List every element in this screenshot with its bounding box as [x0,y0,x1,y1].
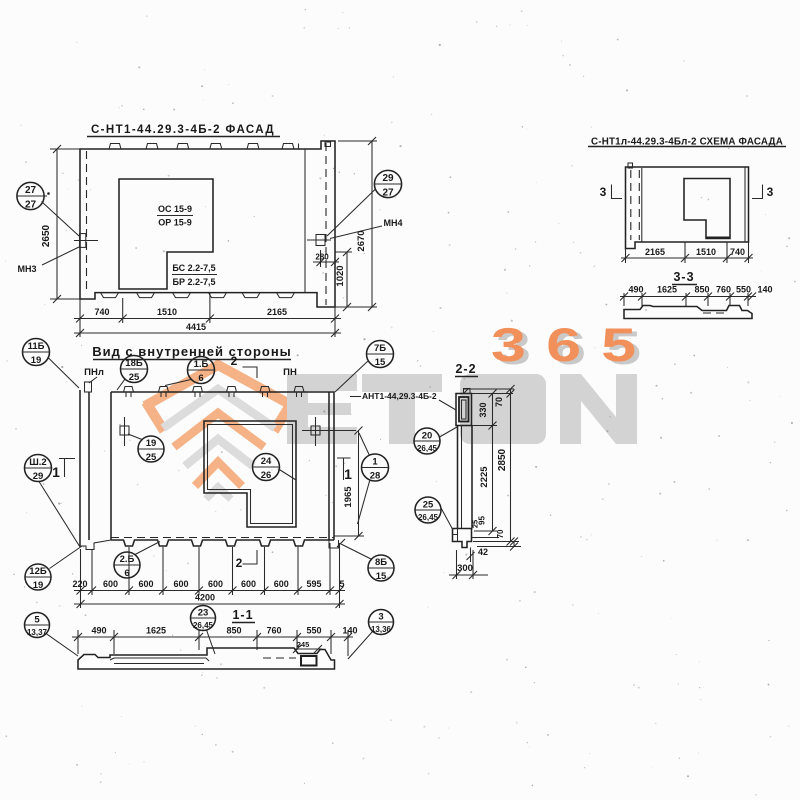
svg-text:19: 19 [31,355,42,366]
svg-text:1: 1 [52,464,60,480]
svg-text:5: 5 [339,579,344,589]
svg-text:5: 5 [34,615,40,626]
svg-text:600: 600 [173,579,188,589]
svg-text:300: 300 [457,563,473,574]
svg-text:ПНл: ПНл [84,367,104,378]
svg-text:2850: 2850 [497,448,508,471]
svg-text:25: 25 [423,500,434,511]
svg-text:3-3: 3-3 [673,270,694,284]
svg-text:8Б: 8Б [375,557,387,568]
svg-text:490: 490 [91,626,106,636]
svg-text:600: 600 [103,579,118,589]
svg-text:13,36: 13,36 [371,625,392,634]
svg-text:1510: 1510 [157,307,177,317]
svg-text:95: 95 [478,516,487,525]
svg-text:29: 29 [33,471,44,482]
svg-text:600: 600 [208,579,223,589]
svg-text:490: 490 [628,285,643,295]
svg-text:760: 760 [266,626,281,636]
svg-text:140: 140 [342,626,357,636]
svg-text:АНТ1-44,29.3-4Б-2: АНТ1-44,29.3-4Б-2 [362,391,437,401]
svg-text:15: 15 [376,571,387,582]
svg-text:140: 140 [757,285,772,295]
svg-text:1625: 1625 [657,285,677,295]
svg-text:2-2: 2-2 [455,362,476,376]
svg-text:13,37: 13,37 [27,628,48,637]
svg-text:760: 760 [716,285,731,295]
svg-text:550: 550 [736,285,751,295]
svg-text:4200: 4200 [195,593,215,603]
svg-text:2165: 2165 [267,307,287,317]
svg-text:26,45: 26,45 [418,513,439,522]
svg-text:1: 1 [372,457,378,468]
svg-text:26,45: 26,45 [193,621,214,630]
svg-text:3: 3 [600,185,607,199]
svg-text:2650: 2650 [41,224,52,247]
svg-text:2165: 2165 [645,247,665,257]
svg-text:19: 19 [33,580,44,591]
svg-text:ОР 15-9: ОР 15-9 [158,218,192,228]
svg-text:27: 27 [382,188,394,199]
svg-text:МН4: МН4 [383,218,402,228]
svg-text:2670: 2670 [356,230,367,251]
svg-text:БС 2.2-7,5: БС 2.2-7,5 [172,263,215,273]
svg-text:600: 600 [241,579,256,589]
svg-text:850: 850 [226,626,241,636]
svg-text:70: 70 [494,397,504,407]
svg-text:4415: 4415 [186,322,206,332]
svg-text:26: 26 [261,470,272,481]
svg-text:6: 6 [198,373,203,384]
svg-text:27: 27 [25,200,37,211]
svg-text:2: 2 [231,354,238,368]
svg-text:365: 365 [491,318,656,371]
svg-text:2.Б: 2.Б [120,554,135,565]
svg-text:2: 2 [236,556,243,570]
svg-text:3: 3 [767,185,774,199]
svg-text:7Б: 7Б [374,343,386,354]
svg-text:42: 42 [478,547,488,557]
svg-text:1510: 1510 [696,247,716,257]
svg-text:23: 23 [198,608,209,619]
svg-text:3: 3 [378,612,383,623]
svg-text:1625: 1625 [146,626,166,636]
svg-text:1-1: 1-1 [232,608,253,622]
svg-text:24: 24 [261,456,272,467]
svg-text:1020: 1020 [335,265,346,286]
svg-text:245: 245 [297,640,310,649]
svg-text:МН3: МН3 [17,264,36,274]
svg-text:28: 28 [370,471,381,482]
svg-text:26,45: 26,45 [417,444,438,453]
svg-text:2225: 2225 [479,466,490,488]
svg-text:С-НТ1-44.29.3-4Б-2 ФАСАД: С-НТ1-44.29.3-4Б-2 ФАСАД [91,124,275,136]
svg-text:600: 600 [138,579,153,589]
svg-text:12Б: 12Б [29,566,47,577]
svg-text:ОС 15-9: ОС 15-9 [158,204,192,214]
svg-text:1: 1 [344,466,352,482]
svg-text:850: 850 [694,285,709,295]
svg-text:29: 29 [382,173,394,184]
svg-text:ПН: ПН [283,367,297,378]
svg-text:БР 2.2-7,5: БР 2.2-7,5 [173,277,216,287]
svg-text:740: 740 [730,247,745,257]
svg-text:25: 25 [146,452,157,463]
svg-text:20: 20 [422,431,433,442]
svg-text:70: 70 [496,529,505,538]
svg-text:330: 330 [478,402,488,417]
svg-text:1965: 1965 [343,486,354,508]
svg-text:15: 15 [375,357,386,368]
svg-text:18Б: 18Б [125,358,143,369]
svg-text:19: 19 [146,438,157,449]
svg-text:1.Б: 1.Б [194,359,209,370]
svg-text:220: 220 [72,579,87,589]
svg-text:Вид с внутренней стороны: Вид с внутренней стороны [92,344,292,359]
svg-text:27: 27 [25,185,37,196]
svg-text:595: 595 [306,579,321,589]
svg-text:Ш.2: Ш.2 [29,457,46,468]
svg-text:600: 600 [274,579,289,589]
svg-text:740: 740 [94,307,109,317]
svg-text:280: 280 [315,253,329,262]
svg-text:25: 25 [129,372,140,383]
svg-text:550: 550 [306,626,321,636]
